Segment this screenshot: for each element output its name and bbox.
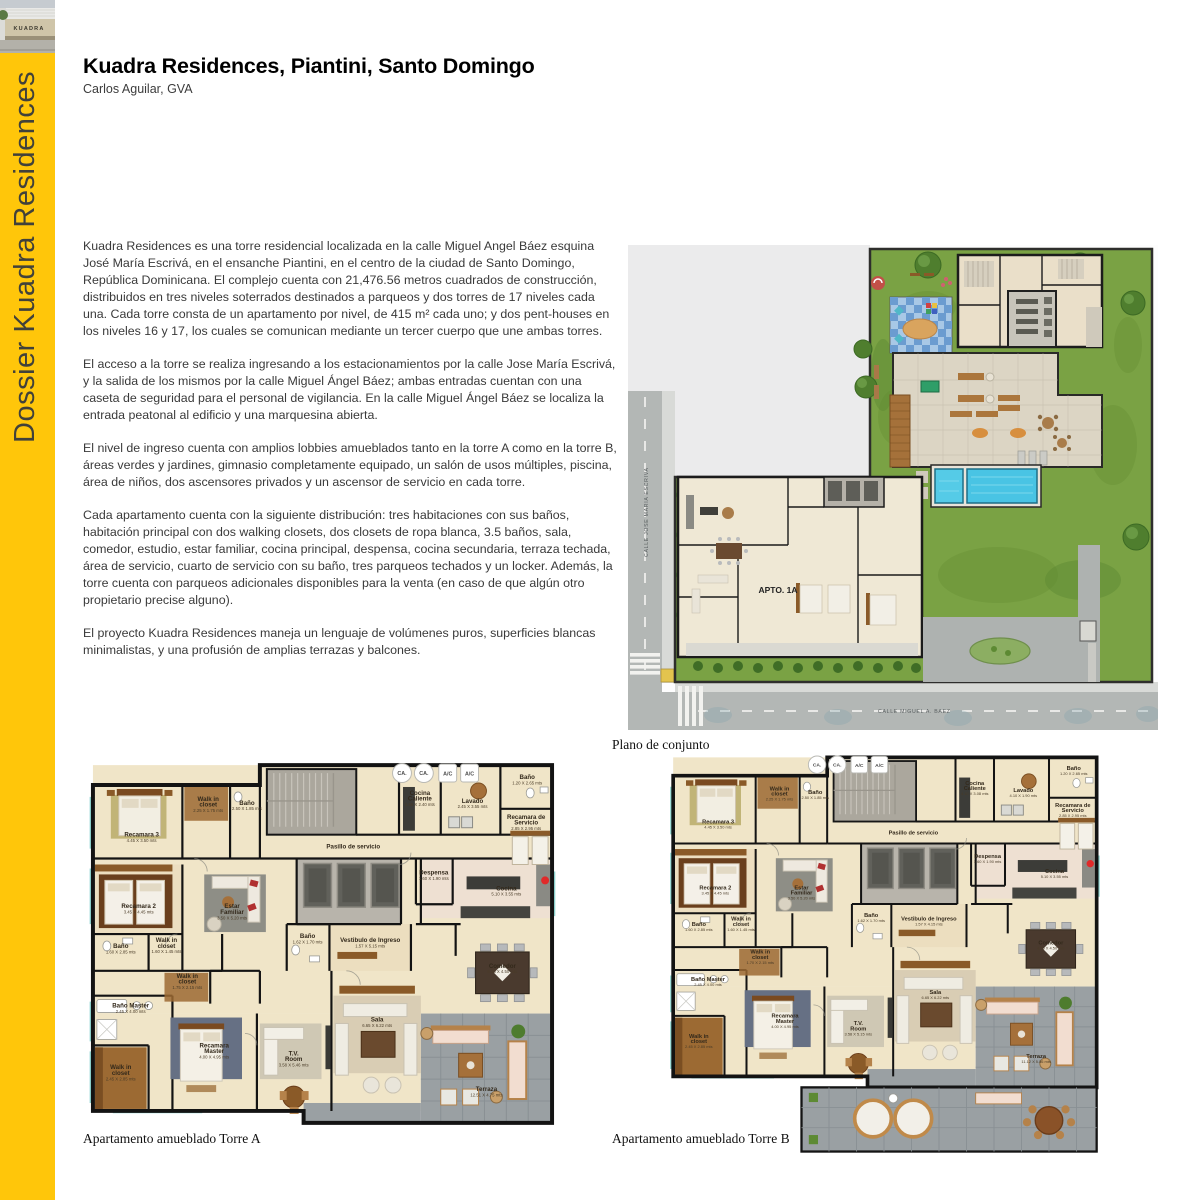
pool (931, 465, 1041, 507)
site-plan-figure: APTO. 1A CALLE JOSE MARIA ESCRIVA CALLE … (628, 245, 1158, 730)
floor-plan-torre-a: CA. CA. A/C A/C Recamara 34.45 X 3.50 mt… (83, 757, 560, 1128)
paragraph: Kuadra Residences es una torre residenci… (83, 238, 620, 340)
room-label: Lavado2.45 X 3.55 mts (458, 798, 488, 809)
dossier-page: KUADRA Dossier Kuadra Residences Kuadra … (0, 0, 1200, 1200)
room-label: Pasillo de servicio (889, 830, 939, 836)
room-label: Recamara 23.45 X 4.45 mts (121, 903, 156, 914)
page-subtitle: Carlos Aguilar, GVA (83, 82, 193, 96)
paragraph: El proyecto Kuadra Residences maneja un … (83, 625, 620, 659)
room-label: Despensa1.60 X 1.90 mts (974, 854, 1002, 864)
room-label: Comedor5.16 X 4.50 mts (487, 963, 517, 974)
room-label: Pasillo de servicio (326, 844, 380, 851)
chip-ca-1: CA. (813, 763, 822, 769)
floor-plan-torre-a-figure: CA. CA. A/C A/C Recamara 34.45 X 3.50 mt… (83, 757, 560, 1128)
room-label: Lavado4.10 X 1.90 mts (1010, 788, 1038, 798)
page-title: Kuadra Residences, Piantini, Santo Domin… (83, 54, 535, 79)
gym (1008, 291, 1056, 347)
room-label: Despensa1.60 X 1.90 mts (419, 869, 449, 880)
floor-plan-a-caption: Apartamento amueblado Torre A (83, 1131, 261, 1147)
paragraph: El nivel de ingreso cuenta con amplios l… (83, 440, 620, 491)
paragraph: El acceso a la torre se realiza ingresan… (83, 356, 620, 424)
chip-ac-1: A/C (855, 763, 864, 769)
building-photo-thumbnail: KUADRA (0, 0, 55, 53)
room-label: Baño Master2.45 X 4.00 mts (112, 1003, 150, 1014)
site-plan-image: APTO. 1A CALLE JOSE MARIA ESCRIVA CALLE … (628, 245, 1158, 730)
apto-1a-building: APTO. 1A (678, 477, 922, 657)
floor-plan-b-caption: Apartamento amueblado Torre B (612, 1131, 790, 1147)
torre-b-terrace-extension (802, 1087, 1097, 1151)
floor-plan-torre-b: CA. CA. A/C A/C Recamara 34.45 X 3.50 mt… (664, 750, 1104, 1158)
floor-plan-torre-b-figure: CA. CA. A/C A/C Recamara 34.45 X 3.50 mt… (664, 750, 1104, 1158)
apto-label: APTO. 1A (758, 585, 797, 595)
sidebar-vertical-label: Dossier Kuadra Residences (9, 71, 42, 443)
room-label: Recamara 34.45 X 3.50 mts (702, 819, 734, 829)
street-bottom-label: CALLE MIGUEL A. BAEZ (878, 709, 951, 715)
chip-ac-2: A/C (465, 772, 474, 778)
chip-ca-1: CA. (397, 771, 407, 777)
thumbnail-sign-text: KUADRA (13, 26, 44, 32)
room-label: Baño Master2.45 X 4.00 mts (691, 977, 726, 987)
body-text: Kuadra Residences es una torre residenci… (83, 238, 620, 675)
room-label: Recamara 34.45 X 3.50 mts (124, 832, 159, 843)
chip-ac-1: A/C (443, 772, 452, 778)
chip-ca-2: CA. (833, 763, 842, 769)
paragraph: Cada apartamento cuenta con la siguiente… (83, 507, 620, 609)
room-label: Comedor4.35 X 4.50 mts (1037, 940, 1065, 950)
room-label: Recamara 23.45 X 4.45 mts (699, 885, 731, 895)
chip-ac-2: A/C (875, 763, 884, 769)
street-left-label: CALLE JOSE MARIA ESCRIVA (644, 467, 650, 557)
chip-ca-2: CA. (419, 771, 429, 777)
